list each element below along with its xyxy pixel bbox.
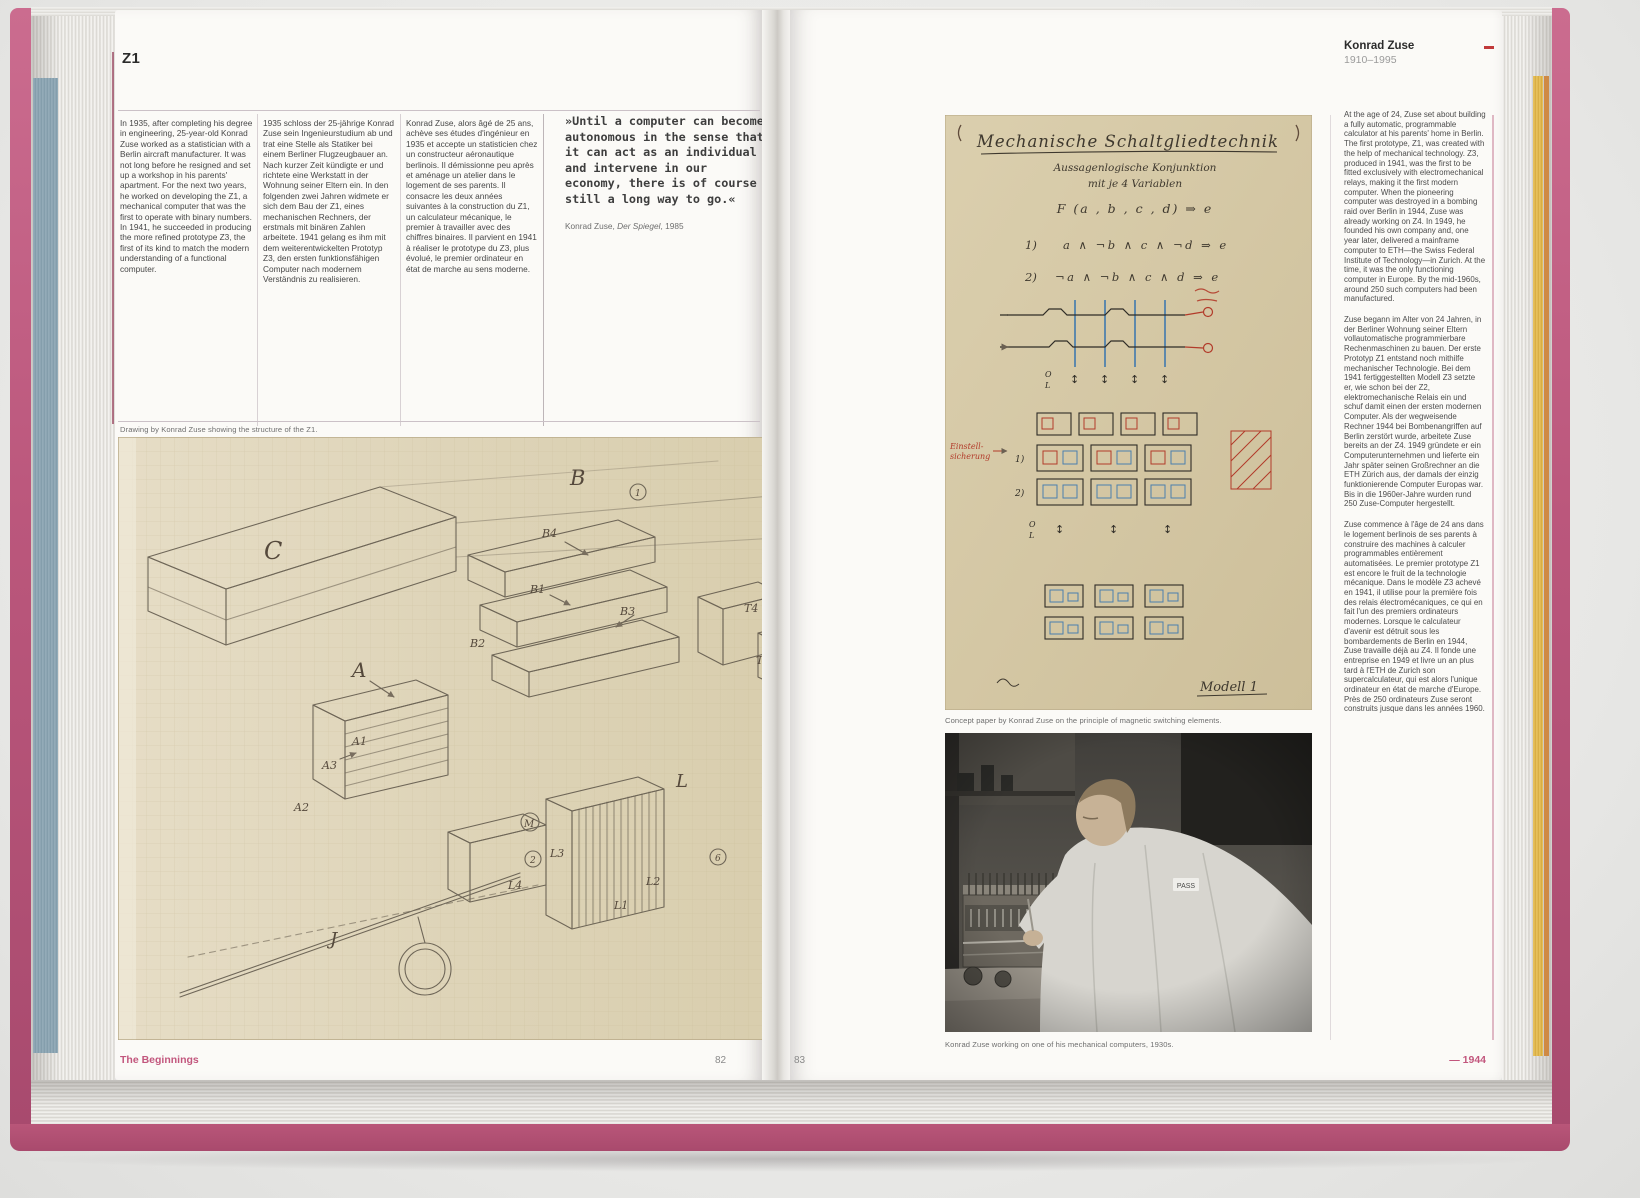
label-m: M — [523, 819, 535, 830]
drawing-caption: Drawing by Konrad Zuse showing the struc… — [120, 425, 318, 434]
heading-accent-rule — [112, 52, 114, 424]
page-edges-left — [31, 16, 115, 1112]
concept-subtitle1: Aussagenlogische Konjunktion — [1053, 162, 1217, 174]
yellow-page-block — [1533, 76, 1543, 1056]
eq1-number: 1) — [1025, 238, 1037, 252]
eq2: ¬a ∧ ¬b ∧ c ∧ d ⇒ e — [1055, 270, 1221, 284]
zuse-photo: PASS — [945, 733, 1312, 1032]
page-title: Z1 — [122, 50, 140, 67]
margin-mark — [1484, 46, 1494, 49]
book-gutter — [762, 10, 790, 1080]
pull-quote-text: »Until a computer can become autonomous … — [565, 114, 767, 208]
side-label-line1: Einstell- — [949, 442, 984, 451]
label-t4: T4 — [744, 602, 758, 615]
label-l1: L1 — [613, 899, 628, 912]
photo-backdrop: Z1 In 1935, after completing his degree … — [0, 0, 1640, 1198]
schematic-l-label: L — [1044, 381, 1050, 390]
label-l2: L2 — [645, 875, 660, 888]
label-b2: B2 — [469, 637, 485, 650]
top-rule — [118, 110, 760, 111]
label-n6: 6 — [715, 854, 721, 864]
label-b4: B4 — [541, 527, 557, 540]
photo-caption: Konrad Zuse working on one of his mechan… — [945, 1040, 1174, 1049]
svg-text:↕: ↕ — [1100, 373, 1109, 386]
label-b1: B1 — [529, 583, 545, 596]
orange-page-block — [1544, 76, 1549, 1056]
concept-title: Mechanische Schaltgliedtechnik — [976, 132, 1279, 151]
attribution-name: Konrad Zuse, — [565, 221, 617, 231]
svg-text:↕: ↕ — [1163, 523, 1172, 536]
grid-row1-number: 1) — [1015, 454, 1025, 465]
page-edges-right — [1502, 16, 1552, 1112]
label-b3: B3 — [619, 605, 635, 618]
blue-page-block — [33, 78, 58, 1053]
attribution-source: Der Spiegel — [617, 221, 660, 231]
column-divider — [400, 114, 401, 426]
page-edges-bottom — [31, 1080, 1552, 1124]
book-cover-bottom-edge — [10, 1124, 1570, 1151]
subject-dates: 1910–1995 — [1344, 54, 1414, 66]
sidebar-biography: At the age of 24, Zuse set about buildin… — [1344, 110, 1486, 725]
concept-caption: Concept paper by Konrad Zuse on the prin… — [945, 716, 1222, 725]
attribution-year: , 1985 — [660, 221, 683, 231]
column-divider — [257, 114, 258, 426]
book-cover-left-edge — [10, 8, 31, 1134]
svg-text:↕: ↕ — [1070, 373, 1079, 386]
pull-quote: »Until a computer can become autonomous … — [565, 114, 767, 231]
column-divider — [543, 114, 544, 426]
eq1: a ∧ ¬b ∧ c ∧ ¬d ⇒ e — [1063, 238, 1229, 252]
label-a3: A3 — [321, 759, 337, 772]
label-c: C — [264, 537, 282, 565]
svg-text:↕: ↕ — [1130, 373, 1139, 386]
page-number-right: 83 — [794, 1055, 805, 1066]
grid-row2-number: 2) — [1014, 488, 1025, 499]
eq2-number: 2) — [1024, 270, 1037, 284]
bio-paragraph-german: Zuse begann im Alter von 24 Jahren, in d… — [1344, 315, 1486, 509]
svg-text:↕: ↕ — [1160, 373, 1169, 386]
concept-subtitle2: mit je 4 Variablen — [1088, 178, 1183, 190]
margin-accent-line — [1492, 115, 1494, 1040]
caption-rule — [118, 421, 760, 422]
svg-text:↕: ↕ — [1055, 523, 1064, 536]
bio-paragraph-french: Zuse commence à l'âge de 24 ans dans le … — [1344, 520, 1486, 714]
label-b: B — [569, 466, 585, 490]
concept-paper-image: Mechanische Schaltgliedtechnik Aussagenl… — [945, 115, 1312, 710]
footer-year: — 1944 — [1386, 1054, 1486, 1066]
grid-l-label: L — [1028, 531, 1034, 540]
model-label: Modell 1 — [1199, 680, 1258, 695]
label-n2: 2 — [529, 856, 536, 866]
label-l: L — [675, 771, 688, 792]
intro-paragraph-english: In 1935, after completing his degree in … — [120, 118, 254, 274]
label-a: A — [350, 658, 366, 682]
subject-name: Konrad Zuse — [1344, 40, 1414, 52]
intro-paragraph-german: 1935 schloss der 25-jährige Konrad Zuse … — [263, 118, 396, 285]
chapter-header: Konrad Zuse 1910–1995 — [1344, 40, 1414, 66]
page-number-left: 82 — [715, 1055, 726, 1066]
svg-text:↕: ↕ — [1109, 523, 1118, 536]
label-l3: L3 — [549, 847, 564, 860]
footer-section-title: The Beginnings — [120, 1054, 199, 1066]
concept-formula: F (a , b , c , d) ⇒ e — [1056, 201, 1213, 216]
sidebar-divider — [1330, 115, 1331, 1040]
label-n1: 1 — [635, 489, 641, 499]
book-cover-right-edge — [1552, 8, 1570, 1134]
intro-paragraph-french: Konrad Zuse, alors âgé de 25 ans, achève… — [406, 118, 539, 274]
bio-paragraph-english: At the age of 24, Zuse set about buildin… — [1344, 110, 1486, 304]
pull-quote-attribution: Konrad Zuse, Der Spiegel, 1985 — [565, 221, 767, 231]
right-page: Konrad Zuse 1910–1995 Mechanische Schalt… — [790, 10, 1502, 1080]
label-a2: A2 — [293, 801, 309, 814]
grid-o-label: O — [1029, 520, 1036, 529]
label-a1: A1 — [351, 735, 367, 748]
schematic-o-label: O — [1045, 370, 1052, 379]
label-l4: L4 — [507, 879, 522, 892]
side-label-line2: sicherung — [950, 452, 990, 461]
left-page: Z1 In 1935, after completing his degree … — [115, 10, 762, 1080]
